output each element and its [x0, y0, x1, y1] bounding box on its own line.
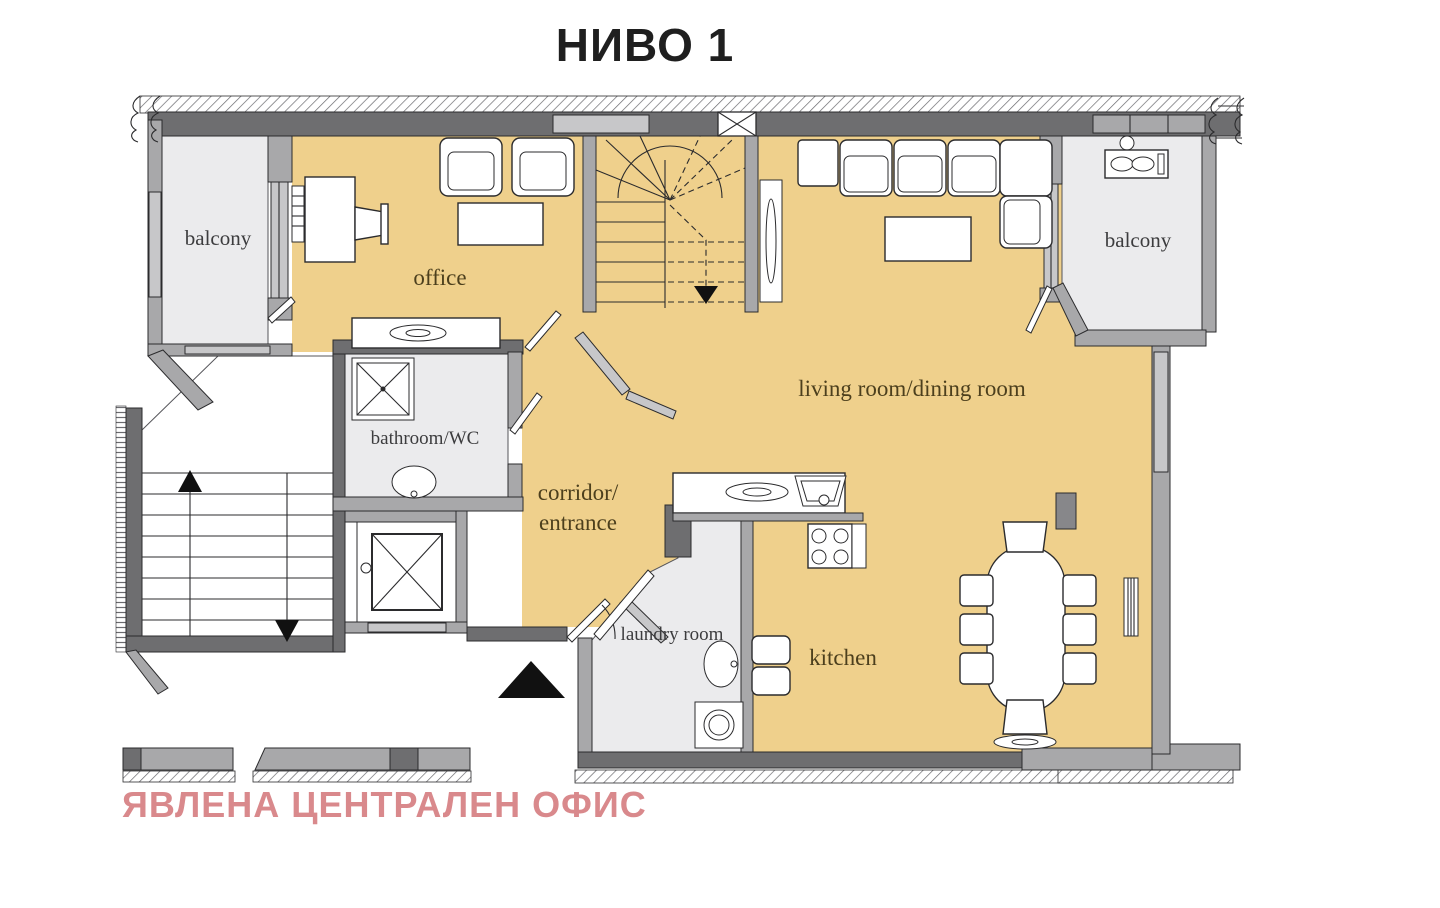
office-coffee-table: [458, 203, 543, 245]
hall-radiator: [760, 180, 782, 302]
label-bathroom: bathroom/WC: [371, 428, 480, 449]
label-entrance: entrance: [539, 510, 617, 535]
tv-unit: [1056, 493, 1076, 529]
watermark-text: ЯВЛЕНА ЦЕНТРАЛЕН ОФИС: [122, 784, 647, 826]
common-stairwell-floor: [142, 356, 333, 638]
kitchen-counter: [673, 473, 863, 521]
laundry-sink: [704, 641, 738, 687]
dining-table: [987, 546, 1065, 712]
label-kitchen: kitchen: [809, 645, 877, 670]
office-armchair: [512, 138, 574, 196]
plan-title: НИВО 1: [495, 18, 795, 72]
label-balcony-right: balcony: [1105, 228, 1172, 252]
label-balcony-left: balcony: [185, 226, 252, 250]
shower: [352, 358, 414, 420]
living-coffee-table: [885, 217, 971, 261]
floor-plan-page: balcony office living room/dining room b…: [0, 0, 1440, 908]
label-laundry: laundry room: [621, 624, 724, 645]
label-living-dining: living room/dining room: [798, 376, 1026, 401]
office-armchair: [440, 138, 502, 196]
entrance-arrow: [498, 661, 565, 698]
label-corridor: corridor/: [538, 480, 619, 505]
wall-radiator: [1124, 578, 1138, 636]
label-office: office: [413, 265, 466, 290]
washing-machine: [695, 702, 743, 748]
office-radiator: [292, 186, 304, 242]
floor-plan-drawing: balcony office living room/dining room b…: [0, 0, 1440, 908]
office-sideboard: [352, 318, 500, 348]
stove: [808, 524, 866, 568]
toilet: [392, 466, 436, 498]
elevator: [357, 522, 456, 622]
